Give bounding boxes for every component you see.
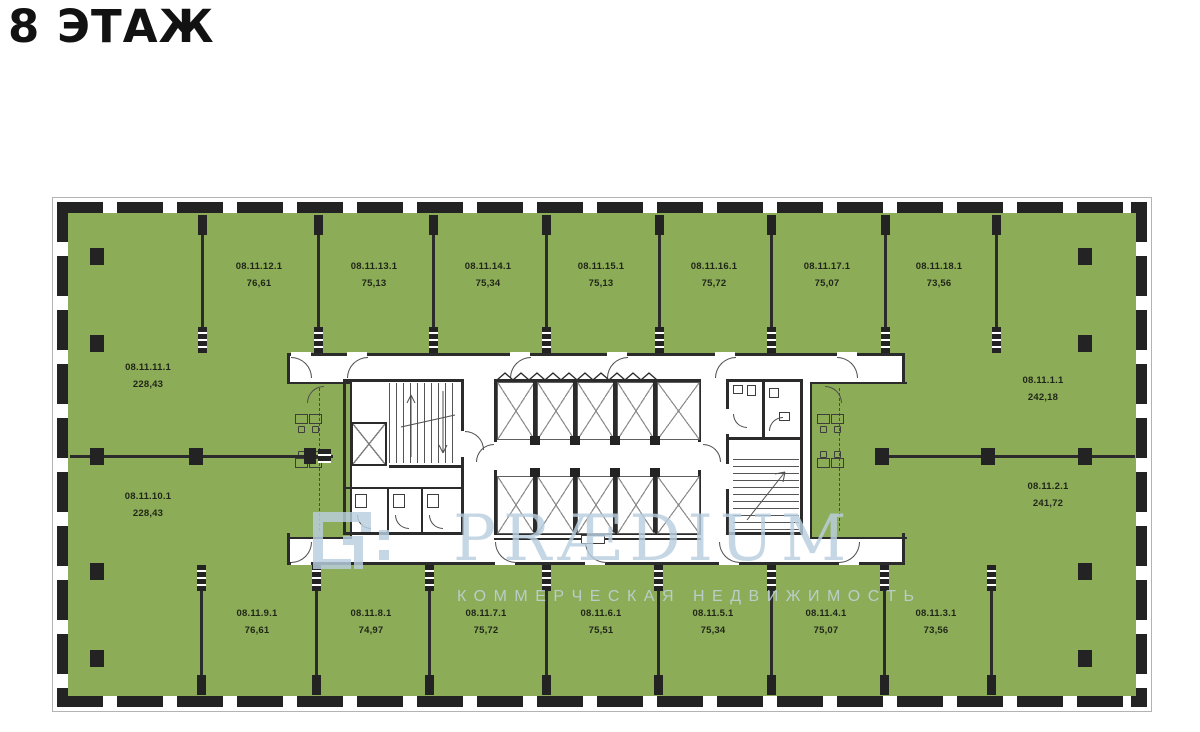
unit-area: 75,72	[474, 625, 499, 636]
unit-08-11-11-1[interactable]: 08.11.11.1228,43	[125, 359, 171, 393]
unit-08-11-2-1[interactable]: 08.11.2.1241,72	[1028, 478, 1069, 512]
wc-fixture	[393, 494, 405, 508]
unit-id: 08.11.12.1	[236, 261, 282, 272]
unit-id: 08.11.17.1	[804, 261, 850, 272]
unit-id: 08.11.5.1	[693, 608, 734, 619]
facade-wall-top	[57, 202, 1147, 213]
unit-area: 73,56	[927, 278, 952, 289]
unit-area: 241,72	[1033, 498, 1063, 509]
unit-area: 75,72	[702, 278, 727, 289]
unit-id: 08.11.11.1	[125, 362, 171, 373]
unit-area: 76,61	[247, 278, 272, 289]
unit-08-11-4-1[interactable]: 08.11.4.175,07	[806, 605, 847, 639]
unit-id: 08.11.7.1	[466, 608, 507, 619]
column	[1078, 650, 1092, 667]
unit-id: 08.11.1.1	[1023, 375, 1064, 386]
wc-fixture	[769, 388, 779, 398]
corridor-wall-top	[287, 353, 905, 356]
wc-fixture	[733, 385, 743, 394]
unit-area: 73,56	[924, 625, 949, 636]
unit-area: 75,34	[476, 278, 501, 289]
unit-08-11-18-1[interactable]: 08.11.18.173,56	[916, 258, 962, 292]
unit-08-11-8-1[interactable]: 08.11.8.174,97	[351, 605, 392, 639]
elevator-shaft-icon	[351, 422, 387, 466]
column	[1078, 248, 1092, 265]
unit-id: 08.11.14.1	[465, 261, 511, 272]
page-title: 8 ЭТАЖ	[8, 0, 215, 53]
unit-area: 228,43	[133, 508, 163, 519]
column	[90, 650, 104, 667]
unit-id: 08.11.15.1	[578, 261, 624, 272]
column	[90, 563, 104, 580]
unit-id: 08.11.18.1	[916, 261, 962, 272]
column	[1078, 335, 1092, 352]
unit-08-11-15-1[interactable]: 08.11.15.175,13	[578, 258, 624, 292]
unit-08-11-10-1[interactable]: 08.11.10.1228,43	[125, 488, 171, 522]
unit-08-11-7-1[interactable]: 08.11.7.175,72	[466, 605, 507, 639]
unit-08-11-3-1[interactable]: 08.11.3.173,56	[916, 605, 957, 639]
unit-08-11-1-1[interactable]: 08.11.1.1242,18	[1023, 372, 1064, 406]
column	[90, 248, 104, 265]
unit-area: 75,13	[589, 278, 614, 289]
unit-area: 75,13	[362, 278, 387, 289]
unit-id: 08.11.6.1	[581, 608, 622, 619]
facade-wall-right	[1136, 202, 1147, 707]
unit-08-11-14-1[interactable]: 08.11.14.175,34	[465, 258, 511, 292]
unit-08-11-17-1[interactable]: 08.11.17.175,07	[804, 258, 850, 292]
unit-08-11-12-1[interactable]: 08.11.12.176,61	[236, 258, 282, 292]
unit-area: 75,51	[589, 625, 614, 636]
unit-id: 08.11.4.1	[806, 608, 847, 619]
wc-fixture	[747, 385, 756, 396]
unit-id: 08.11.9.1	[237, 608, 278, 619]
unit-id: 08.11.13.1	[351, 261, 397, 272]
unit-id: 08.11.8.1	[351, 608, 392, 619]
stair-arrows-icon	[397, 385, 459, 463]
facade-wall-left	[57, 202, 68, 707]
unit-08-11-16-1[interactable]: 08.11.16.175,72	[691, 258, 737, 292]
stair-arrow-icon	[739, 458, 797, 528]
unit-08-11-6-1[interactable]: 08.11.6.175,51	[581, 605, 622, 639]
facade-wall-bottom	[57, 696, 1147, 707]
unit-area: 228,43	[133, 379, 163, 390]
wc-fixture	[427, 494, 439, 508]
unit-08-11-13-1[interactable]: 08.11.13.175,13	[351, 258, 397, 292]
unit-area: 74,97	[359, 625, 384, 636]
unit-08-11-5-1[interactable]: 08.11.5.175,34	[693, 605, 734, 639]
unit-id: 08.11.2.1	[1028, 481, 1069, 492]
unit-area: 75,07	[814, 625, 839, 636]
column	[90, 335, 104, 352]
unit-id: 08.11.10.1	[125, 491, 171, 502]
unit-area: 75,34	[701, 625, 726, 636]
unit-id: 08.11.3.1	[916, 608, 957, 619]
floor-plan: 08.11.12.176,6108.11.13.175,1308.11.14.1…	[57, 202, 1147, 707]
unit-area: 242,18	[1028, 392, 1058, 403]
unit-area: 76,61	[245, 625, 270, 636]
unit-id: 08.11.16.1	[691, 261, 737, 272]
unit-area: 75,07	[815, 278, 840, 289]
wc-fixture	[355, 494, 367, 508]
unit-08-11-9-1[interactable]: 08.11.9.176,61	[237, 605, 278, 639]
column	[1078, 563, 1092, 580]
